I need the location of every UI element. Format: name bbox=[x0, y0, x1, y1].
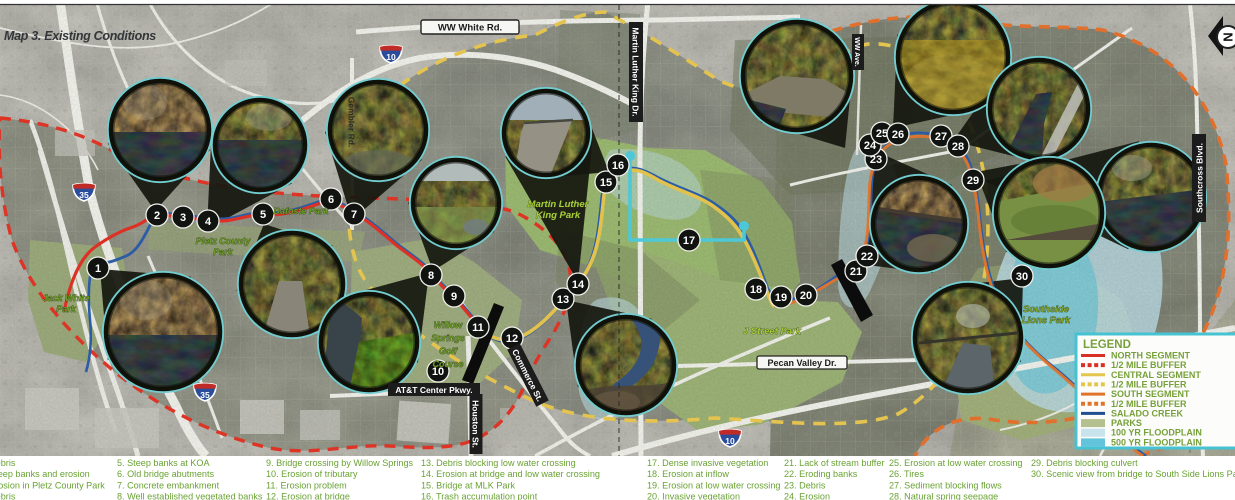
svg-text:100 YR FLOODPLAIN: 100 YR FLOODPLAIN bbox=[1111, 428, 1202, 438]
svg-text:9: 9 bbox=[451, 291, 457, 303]
svg-text:CENTRAL SEGMENT: CENTRAL SEGMENT bbox=[1111, 370, 1201, 380]
svg-text:12: 12 bbox=[506, 333, 518, 345]
svg-text:3. Erosion in Pletz County Par: 3. Erosion in Pletz County Park bbox=[0, 480, 105, 490]
svg-text:6: 6 bbox=[328, 194, 334, 206]
svg-text:AT&T Center Pkwy.: AT&T Center Pkwy. bbox=[395, 385, 472, 395]
svg-text:LEGEND: LEGEND bbox=[1083, 339, 1131, 351]
svg-text:Park: Park bbox=[213, 247, 234, 257]
svg-text:Dafoste Park: Dafoste Park bbox=[273, 206, 329, 216]
svg-text:20. Invasive vegetation: 20. Invasive vegetation bbox=[647, 492, 740, 500]
svg-text:22. Eroding banks: 22. Eroding banks bbox=[784, 469, 858, 479]
svg-text:14. Erosion at bridge and low: 14. Erosion at bridge and low water cros… bbox=[421, 469, 600, 479]
svg-text:PARKS: PARKS bbox=[1111, 418, 1142, 428]
svg-text:14: 14 bbox=[572, 279, 585, 291]
svg-text:29: 29 bbox=[967, 175, 979, 187]
svg-text:N: N bbox=[1221, 32, 1235, 41]
svg-text:SALADO CREEK: SALADO CREEK bbox=[1111, 408, 1184, 418]
svg-text:10: 10 bbox=[725, 436, 735, 446]
svg-text:J Street Park: J Street Park bbox=[743, 326, 802, 337]
svg-text:16: 16 bbox=[612, 160, 624, 172]
svg-text:1/2 MILE BUFFER: 1/2 MILE BUFFER bbox=[1111, 360, 1187, 370]
svg-text:35: 35 bbox=[79, 190, 89, 200]
svg-text:1/2 MILE BUFFER: 1/2 MILE BUFFER bbox=[1111, 379, 1187, 389]
svg-text:Lions Park: Lions Park bbox=[1022, 315, 1071, 326]
svg-text:29. Debris blocking culvert: 29. Debris blocking culvert bbox=[1031, 458, 1138, 468]
svg-text:21: 21 bbox=[850, 266, 862, 278]
svg-text:Golf: Golf bbox=[439, 346, 458, 356]
svg-text:15. Bridge at MLK Park: 15. Bridge at MLK Park bbox=[421, 480, 515, 490]
svg-text:Pecan Valley Dr.: Pecan Valley Dr. bbox=[767, 358, 836, 368]
svg-text:Southcross Blvd.: Southcross Blvd. bbox=[1195, 143, 1205, 213]
svg-text:11: 11 bbox=[472, 322, 484, 334]
svg-text:22: 22 bbox=[861, 251, 873, 263]
svg-text:Southside: Southside bbox=[1023, 304, 1070, 315]
svg-text:6. Old bridge abutments: 6. Old bridge abutments bbox=[117, 469, 215, 479]
svg-text:20: 20 bbox=[800, 290, 812, 302]
svg-text:Jack White: Jack White bbox=[42, 293, 89, 303]
svg-text:Willow: Willow bbox=[434, 320, 463, 330]
svg-text:Park: Park bbox=[56, 304, 77, 314]
svg-text:30: 30 bbox=[1016, 271, 1028, 283]
svg-text:2: 2 bbox=[154, 210, 160, 222]
svg-text:13: 13 bbox=[557, 294, 569, 306]
svg-text:17: 17 bbox=[683, 235, 695, 247]
svg-text:23. Debris: 23. Debris bbox=[784, 480, 826, 490]
svg-text:25. Erosion at low water cross: 25. Erosion at low water crossing bbox=[889, 458, 1022, 468]
svg-text:Martin Luther King Dr.: Martin Luther King Dr. bbox=[631, 27, 641, 116]
svg-text:19. Erosion at low water cross: 19. Erosion at low water crossing bbox=[647, 480, 780, 490]
svg-text:2. Steep banks and erosion: 2. Steep banks and erosion bbox=[0, 469, 90, 479]
svg-text:1. Debris: 1. Debris bbox=[0, 458, 16, 468]
svg-text:NORTH SEGMENT: NORTH SEGMENT bbox=[1111, 351, 1191, 361]
svg-text:Pletz County: Pletz County bbox=[196, 236, 251, 246]
svg-text:25: 25 bbox=[876, 128, 888, 140]
svg-text:7: 7 bbox=[351, 209, 357, 221]
svg-text:4. Debris: 4. Debris bbox=[0, 492, 16, 500]
svg-text:35: 35 bbox=[200, 390, 210, 400]
svg-text:26: 26 bbox=[892, 129, 904, 141]
svg-text:28: 28 bbox=[952, 141, 964, 153]
svg-text:Martin Luther: Martin Luther bbox=[528, 199, 590, 210]
svg-text:9. Bridge crossing by Willow S: 9. Bridge crossing by Willow Springs bbox=[266, 458, 414, 468]
svg-text:7. Concrete embankment: 7. Concrete embankment bbox=[117, 480, 220, 490]
svg-text:18: 18 bbox=[750, 284, 762, 296]
svg-text:15: 15 bbox=[600, 177, 612, 189]
svg-text:10. Erosion of tributary: 10. Erosion of tributary bbox=[266, 469, 358, 479]
svg-text:Map 3. Existing Conditions: Map 3. Existing Conditions bbox=[4, 29, 156, 43]
svg-text:1: 1 bbox=[95, 263, 101, 275]
svg-text:18. Erosion at inflow: 18. Erosion at inflow bbox=[647, 469, 729, 479]
svg-text:19: 19 bbox=[775, 292, 787, 304]
svg-text:500 YR FLOODPLAIN: 500 YR FLOODPLAIN bbox=[1111, 437, 1202, 447]
svg-text:12. Erosion at bridge: 12. Erosion at bridge bbox=[266, 492, 350, 500]
svg-text:21. Lack of stream buffer: 21. Lack of stream buffer bbox=[784, 458, 884, 468]
svg-text:10: 10 bbox=[386, 52, 396, 62]
svg-text:SOUTH SEGMENT: SOUTH SEGMENT bbox=[1111, 389, 1190, 399]
svg-text:26. Tires: 26. Tires bbox=[889, 469, 924, 479]
svg-text:27: 27 bbox=[935, 131, 947, 143]
svg-text:8: 8 bbox=[428, 270, 434, 282]
svg-text:11. Erosion problem: 11. Erosion problem bbox=[266, 480, 347, 490]
svg-text:5. Steep banks at KOA: 5. Steep banks at KOA bbox=[117, 458, 210, 468]
svg-text:1/2 MILE BUFFER: 1/2 MILE BUFFER bbox=[1111, 399, 1187, 409]
svg-text:13. Debris blocking low water: 13. Debris blocking low water crossing bbox=[421, 458, 576, 468]
svg-text:16. Trash accumulation point: 16. Trash accumulation point bbox=[421, 492, 538, 500]
svg-text:WW White Rd.: WW White Rd. bbox=[438, 23, 502, 34]
svg-text:24. Erosion: 24. Erosion bbox=[784, 492, 830, 500]
svg-text:17. Dense invasive vegetation: 17. Dense invasive vegetation bbox=[647, 458, 768, 468]
svg-text:3: 3 bbox=[180, 212, 186, 224]
svg-text:Springs: Springs bbox=[431, 333, 465, 343]
svg-text:4: 4 bbox=[205, 216, 212, 228]
svg-text:King Park: King Park bbox=[536, 210, 581, 221]
svg-text:30. Scenic view from bridge to: 30. Scenic view from bridge to South Sid… bbox=[1031, 469, 1235, 479]
svg-text:Houston St.: Houston St. bbox=[471, 400, 481, 448]
svg-text:Gembler Rd.: Gembler Rd. bbox=[347, 97, 357, 148]
svg-text:Course: Course bbox=[432, 359, 463, 369]
svg-text:27. Sediment blocking flows: 27. Sediment blocking flows bbox=[889, 480, 1002, 490]
svg-text:8. Well established vegetated: 8. Well established vegetated banks bbox=[117, 492, 263, 500]
svg-text:WW Ave.: WW Ave. bbox=[853, 37, 860, 66]
svg-text:28. Natural spring seepage: 28. Natural spring seepage bbox=[889, 492, 998, 500]
svg-text:5: 5 bbox=[260, 209, 266, 221]
